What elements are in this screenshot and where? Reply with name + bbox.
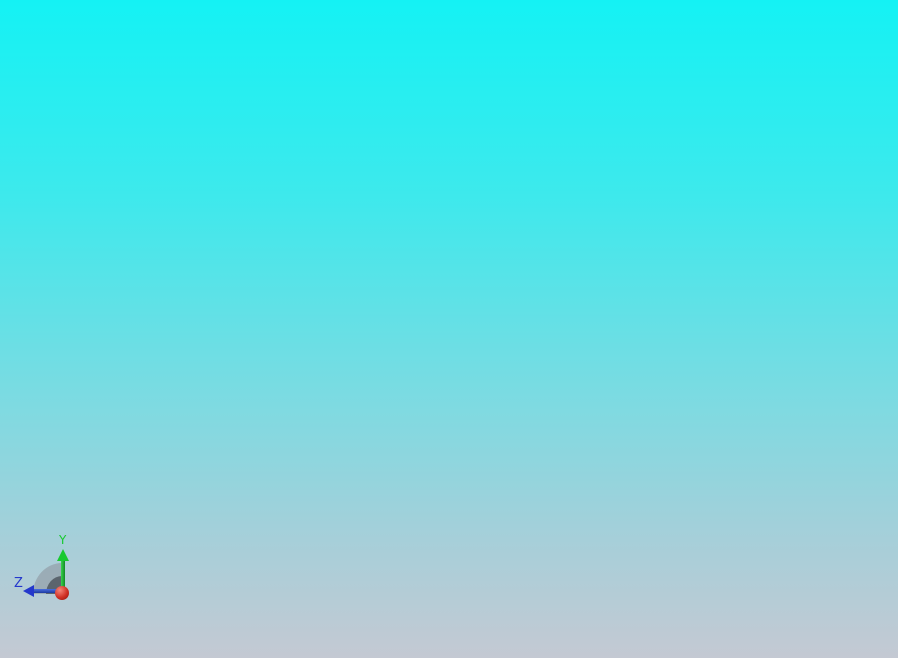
z-axis-label: Z bbox=[14, 578, 23, 590]
z-axis-arrow-icon[interactable] bbox=[23, 585, 34, 597]
roof[interactable] bbox=[21, 112, 877, 147]
origin-ball[interactable] bbox=[55, 586, 69, 600]
cad-viewport[interactable]: Y Z bbox=[0, 0, 898, 658]
y-axis-label: Y bbox=[59, 534, 66, 546]
y-axis-arrow-icon[interactable] bbox=[57, 549, 69, 561]
